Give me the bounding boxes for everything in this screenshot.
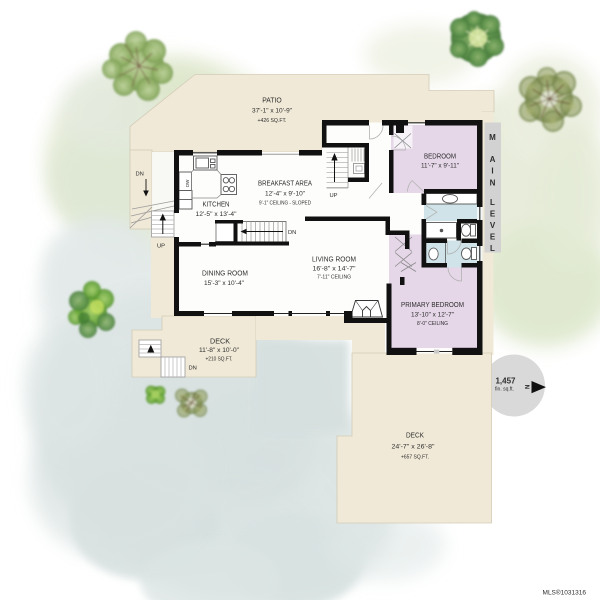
svg-text:V: V — [490, 221, 496, 230]
svg-text:DN: DN — [288, 230, 296, 236]
svg-text:PATIO: PATIO — [262, 98, 282, 105]
svg-text:BEDROOM: BEDROOM — [424, 152, 456, 161]
svg-text:+210 SQ.FT.: +210 SQ.FT. — [206, 357, 233, 363]
svg-text:+657 SQ.FT.: +657 SQ.FT. — [401, 455, 429, 461]
svg-text:E: E — [490, 210, 496, 219]
svg-text:8'-0" CEILING: 8'-0" CEILING — [417, 321, 448, 327]
svg-text:15'-3" x 10'-4": 15'-3" x 10'-4" — [204, 280, 245, 287]
svg-text:I: I — [491, 167, 493, 176]
svg-text:MLS®1031316: MLS®1031316 — [543, 589, 587, 597]
svg-text:fin. sq.ft.: fin. sq.ft. — [495, 387, 514, 393]
svg-text:L: L — [490, 244, 495, 253]
svg-text:37'-1" x 10'-9": 37'-1" x 10'-9" — [252, 108, 293, 115]
svg-text:DN: DN — [189, 366, 197, 372]
svg-text:11'-7" x 9'-11": 11'-7" x 9'-11" — [421, 163, 460, 170]
svg-text:E: E — [490, 233, 496, 242]
svg-text:DN: DN — [136, 172, 144, 178]
svg-text:DECK: DECK — [210, 339, 230, 346]
svg-text:A: A — [490, 155, 496, 164]
svg-text:L: L — [490, 198, 495, 207]
svg-text:DW: DW — [185, 179, 190, 187]
svg-text:LIVING ROOM: LIVING ROOM — [312, 255, 356, 264]
svg-text:N: N — [523, 385, 530, 390]
svg-text:24'-7" x 26'-8": 24'-7" x 26'-8" — [392, 444, 436, 451]
svg-text:1,457: 1,457 — [495, 377, 516, 386]
svg-text:12'-5" x 13'-4": 12'-5" x 13'-4" — [196, 211, 238, 218]
svg-text:UP: UP — [157, 244, 165, 250]
svg-text:UP: UP — [330, 193, 338, 199]
svg-text:DECK: DECK — [406, 433, 424, 440]
svg-text:KITCHEN: KITCHEN — [203, 200, 230, 209]
svg-text:11'-8" x 10'-0": 11'-8" x 10'-0" — [199, 347, 240, 354]
svg-text:DINING ROOM: DINING ROOM — [202, 269, 248, 278]
svg-text:N: N — [490, 179, 496, 188]
svg-text:PRIMARY BEDROOM: PRIMARY BEDROOM — [401, 300, 464, 309]
svg-text:+426 SQ.FT.: +426 SQ.FT. — [258, 118, 287, 124]
svg-text:12'-4" x 9'-10": 12'-4" x 9'-10" — [265, 191, 306, 198]
svg-text:13'-10" x 12'-7": 13'-10" x 12'-7" — [411, 312, 455, 319]
svg-text:M: M — [489, 133, 496, 142]
svg-text:BREAKFAST AREA: BREAKFAST AREA — [258, 179, 312, 188]
svg-text:7'-11" CEILING: 7'-11" CEILING — [317, 275, 351, 281]
svg-text:9'-1" CEILING - SLOPED: 9'-1" CEILING - SLOPED — [259, 201, 311, 207]
svg-text:16'-8" x 14'-7": 16'-8" x 14'-7" — [313, 266, 357, 273]
